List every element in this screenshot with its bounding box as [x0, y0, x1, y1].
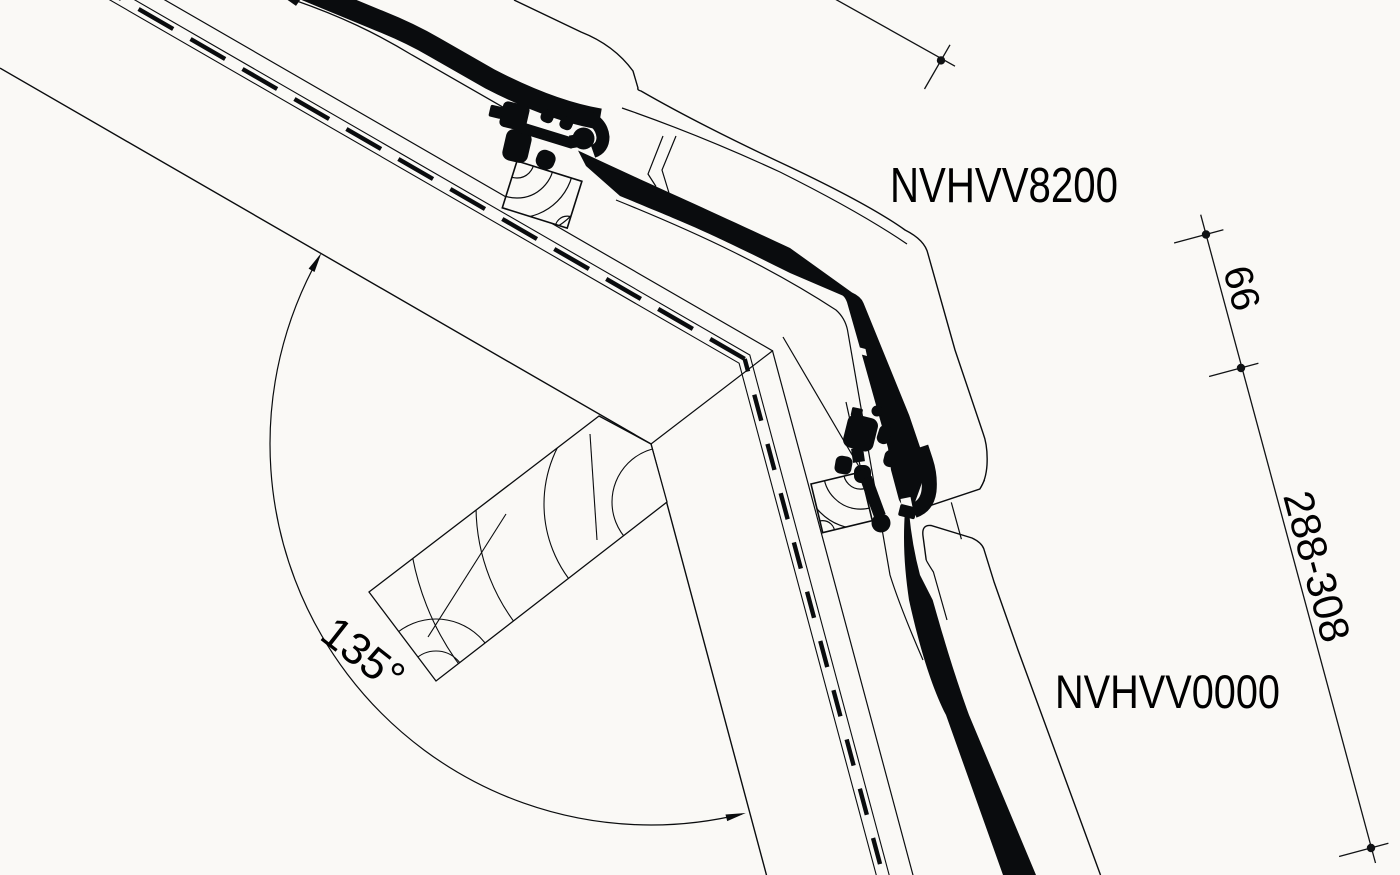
svg-text:NVHVV8200: NVHVV8200	[890, 159, 1118, 213]
svg-text:NVHVV0000: NVHVV0000	[1055, 665, 1280, 718]
